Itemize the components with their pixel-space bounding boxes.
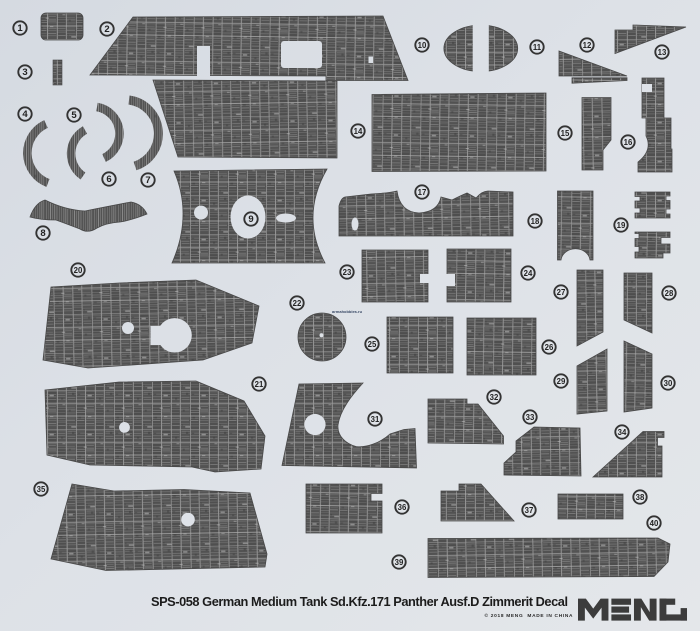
svg-text:armahobbies.ru: armahobbies.ru [332, 309, 363, 314]
svg-text:13: 13 [658, 48, 667, 57]
svg-text:27: 27 [557, 288, 566, 297]
svg-text:10: 10 [418, 41, 427, 50]
svg-text:20: 20 [74, 266, 83, 275]
svg-text:31: 31 [371, 415, 380, 424]
svg-text:7: 7 [145, 175, 150, 186]
svg-text:33: 33 [526, 413, 535, 422]
svg-text:19: 19 [617, 221, 626, 230]
svg-text:26: 26 [545, 343, 554, 352]
svg-text:2: 2 [104, 24, 109, 35]
svg-text:22: 22 [293, 299, 302, 308]
svg-text:29: 29 [557, 377, 566, 386]
svg-text:39: 39 [395, 558, 404, 567]
svg-text:21: 21 [255, 380, 264, 389]
svg-text:SPS-058 German Medium Tank Sd.: SPS-058 German Medium Tank Sd.Kfz.171 Pa… [151, 594, 568, 609]
svg-text:6: 6 [106, 174, 111, 185]
svg-text:4: 4 [22, 109, 28, 120]
svg-text:11: 11 [533, 43, 542, 52]
svg-text:8: 8 [40, 228, 45, 239]
svg-text:14: 14 [354, 127, 363, 136]
svg-text:34: 34 [618, 428, 627, 437]
svg-text:37: 37 [525, 506, 534, 515]
svg-text:40: 40 [650, 519, 659, 528]
svg-text:15: 15 [561, 129, 570, 138]
svg-text:32: 32 [490, 393, 499, 402]
svg-text:23: 23 [343, 268, 352, 277]
svg-text:5: 5 [71, 110, 77, 121]
svg-text:35: 35 [37, 485, 46, 494]
svg-text:1: 1 [17, 23, 23, 34]
svg-text:3: 3 [22, 67, 27, 78]
svg-text:25: 25 [368, 340, 377, 349]
svg-text:© 2018 MENG MADE IN CHINA: © 2018 MENG MADE IN CHINA [485, 612, 574, 619]
svg-text:16: 16 [624, 138, 633, 147]
svg-text:28: 28 [665, 289, 674, 298]
svg-text:17: 17 [418, 188, 427, 197]
svg-text:12: 12 [583, 41, 592, 50]
svg-text:38: 38 [636, 493, 645, 502]
svg-text:30: 30 [664, 379, 673, 388]
svg-text:36: 36 [398, 503, 407, 512]
svg-text:9: 9 [248, 214, 253, 225]
svg-text:24: 24 [524, 269, 533, 278]
svg-text:18: 18 [531, 217, 540, 226]
